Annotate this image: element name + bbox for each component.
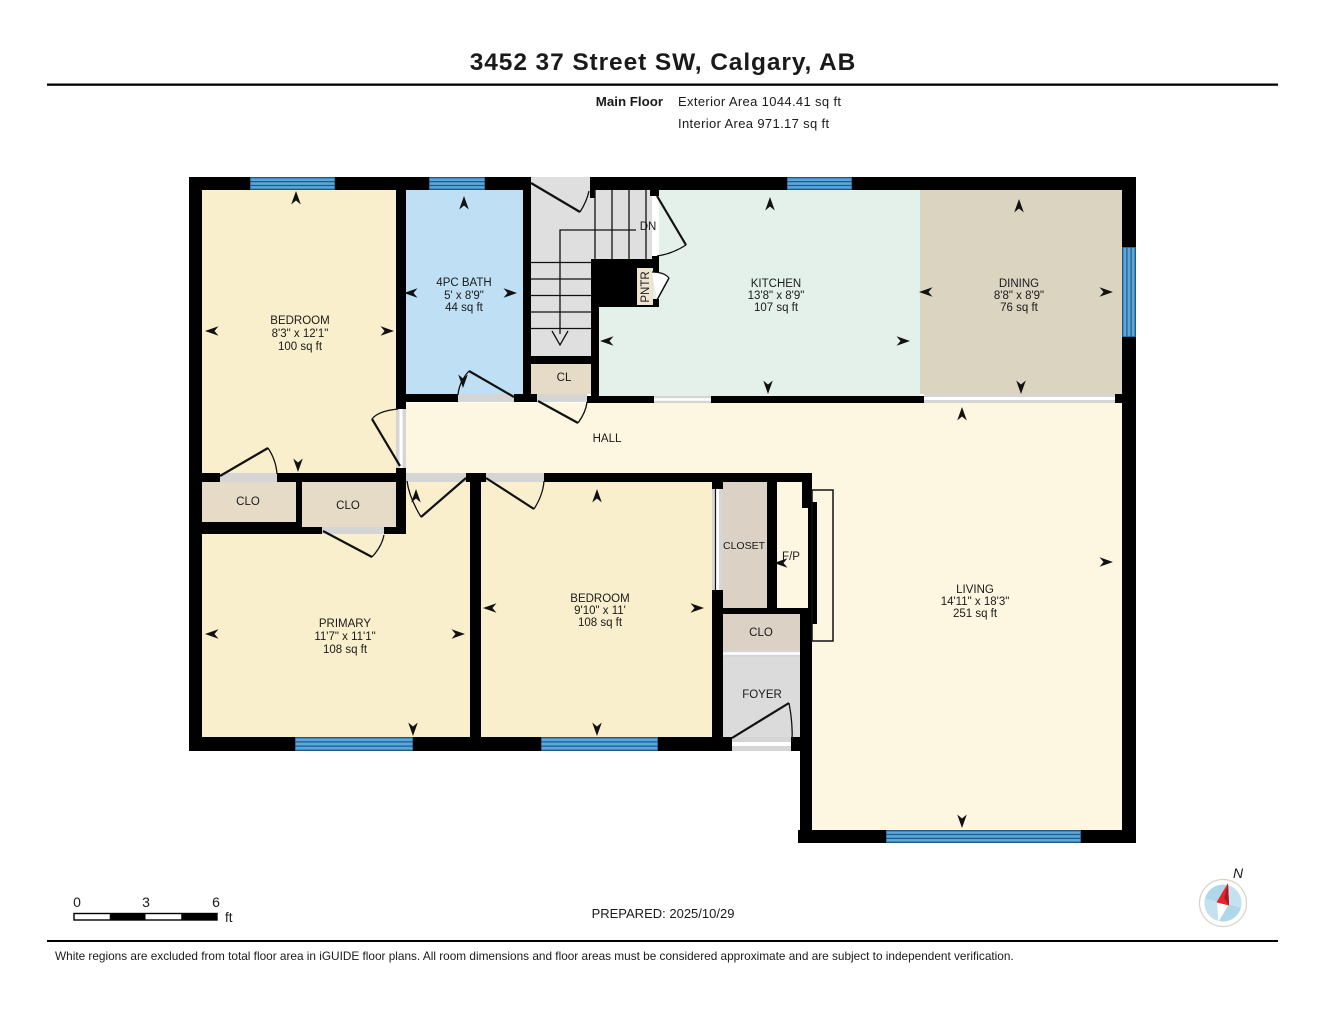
svg-text:White regions are excluded fro: White regions are excluded from total fl… bbox=[55, 949, 1014, 963]
svg-text:N: N bbox=[1233, 865, 1244, 881]
svg-text:LIVING: LIVING bbox=[956, 584, 994, 596]
svg-text:CLO: CLO bbox=[336, 500, 360, 512]
svg-text:4PC BATH: 4PC BATH bbox=[436, 277, 491, 289]
svg-text:13'8" x 8'9": 13'8" x 8'9" bbox=[748, 290, 805, 302]
svg-text:PREPARED: 2025/10/29: PREPARED: 2025/10/29 bbox=[592, 906, 735, 921]
svg-text:14'11" x 18'3": 14'11" x 18'3" bbox=[941, 596, 1010, 608]
svg-text:Exterior Area 1044.41 sq ft: Exterior Area 1044.41 sq ft bbox=[678, 94, 841, 109]
svg-text:FOYER: FOYER bbox=[742, 689, 782, 701]
svg-text:3: 3 bbox=[142, 894, 150, 910]
svg-text:108 sq ft: 108 sq ft bbox=[323, 644, 368, 656]
svg-text:8'8" x 8'9": 8'8" x 8'9" bbox=[994, 290, 1044, 302]
svg-text:F/P: F/P bbox=[782, 551, 800, 563]
svg-text:PNTR: PNTR bbox=[640, 271, 652, 302]
svg-text:107 sq ft: 107 sq ft bbox=[754, 302, 799, 314]
svg-text:DN: DN bbox=[640, 221, 657, 233]
svg-text:CL: CL bbox=[557, 372, 572, 384]
svg-text:ft: ft bbox=[225, 910, 233, 925]
svg-text:3452 37 Street SW, Calgary, AB: 3452 37 Street SW, Calgary, AB bbox=[470, 49, 857, 76]
svg-text:6: 6 bbox=[212, 894, 220, 910]
svg-text:PRIMARY: PRIMARY bbox=[319, 618, 372, 630]
svg-text:0: 0 bbox=[73, 894, 81, 910]
svg-text:Main Floor: Main Floor bbox=[596, 94, 663, 109]
svg-text:9'10" x 11': 9'10" x 11' bbox=[574, 605, 626, 617]
svg-text:11'7" x 11'1": 11'7" x 11'1" bbox=[314, 631, 375, 643]
svg-text:HALL: HALL bbox=[593, 433, 622, 445]
svg-text:100 sq ft: 100 sq ft bbox=[278, 341, 323, 353]
svg-text:8'3" x 12'1": 8'3" x 12'1" bbox=[272, 328, 329, 340]
svg-text:Interior Area 971.17 sq ft: Interior Area 971.17 sq ft bbox=[678, 116, 830, 131]
svg-text:5' x 8'9": 5' x 8'9" bbox=[444, 290, 484, 302]
svg-text:44 sq ft: 44 sq ft bbox=[445, 302, 484, 314]
svg-text:251 sq ft: 251 sq ft bbox=[953, 608, 998, 620]
svg-text:KITCHEN: KITCHEN bbox=[751, 278, 801, 290]
svg-text:BEDROOM: BEDROOM bbox=[270, 315, 329, 327]
svg-text:76 sq ft: 76 sq ft bbox=[1000, 302, 1039, 314]
svg-text:BEDROOM: BEDROOM bbox=[570, 593, 629, 605]
svg-text:DINING: DINING bbox=[999, 278, 1039, 290]
svg-text:CLOSET: CLOSET bbox=[723, 540, 766, 552]
svg-text:CLO: CLO bbox=[236, 496, 260, 508]
svg-text:CLO: CLO bbox=[749, 627, 773, 639]
svg-text:108 sq ft: 108 sq ft bbox=[578, 617, 623, 629]
